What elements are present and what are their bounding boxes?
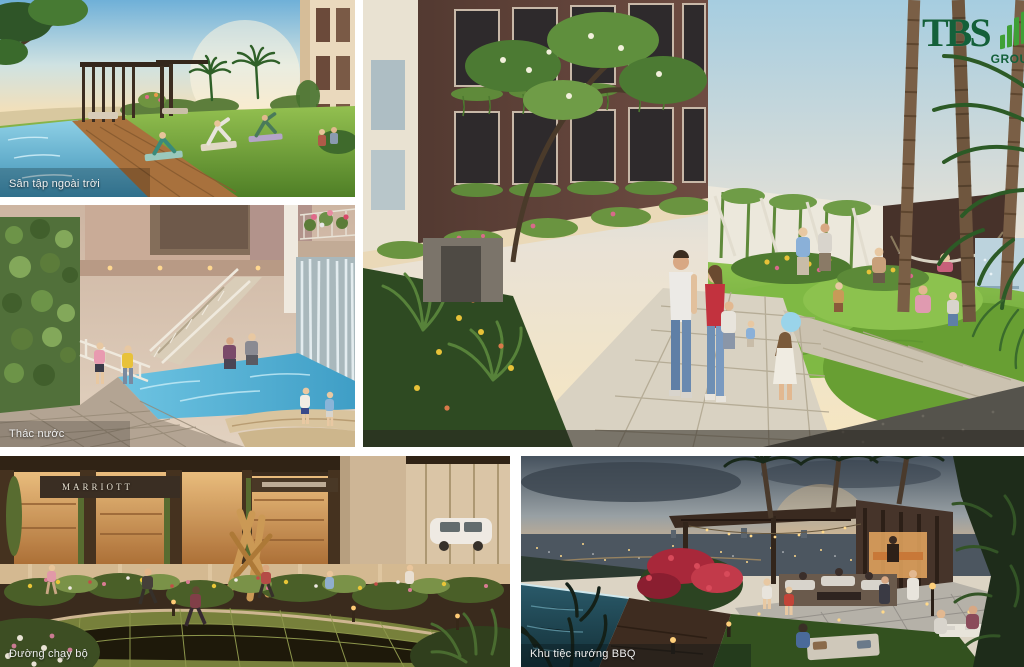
panel-yoga-deck: Sân tập ngoài trời <box>0 0 355 197</box>
panel-waterfall-court: Thác nước <box>0 205 355 447</box>
pool-steps <box>225 409 355 447</box>
tbs-wordmark: TBS <box>922 10 989 56</box>
yoga-deck-render <box>0 0 355 197</box>
panel-jogging-path: MARRIOTT Đường chạy bộ <box>0 456 510 667</box>
marriott-sign: MARRIOTT <box>62 482 133 492</box>
panel-bbq-terrace: Khu tiệc nướng BBQ <box>521 456 1024 667</box>
waterfall-render <box>0 205 355 447</box>
group-wordmark: GROUP <box>991 52 1024 66</box>
tbs-group-logo: TBS GROUP <box>922 10 1014 76</box>
green-wall <box>0 217 80 413</box>
leaf-icon <box>998 10 1024 54</box>
bbq-render <box>521 456 1024 667</box>
marketing-collage: Sân tập ngoài trời <box>0 0 1024 667</box>
